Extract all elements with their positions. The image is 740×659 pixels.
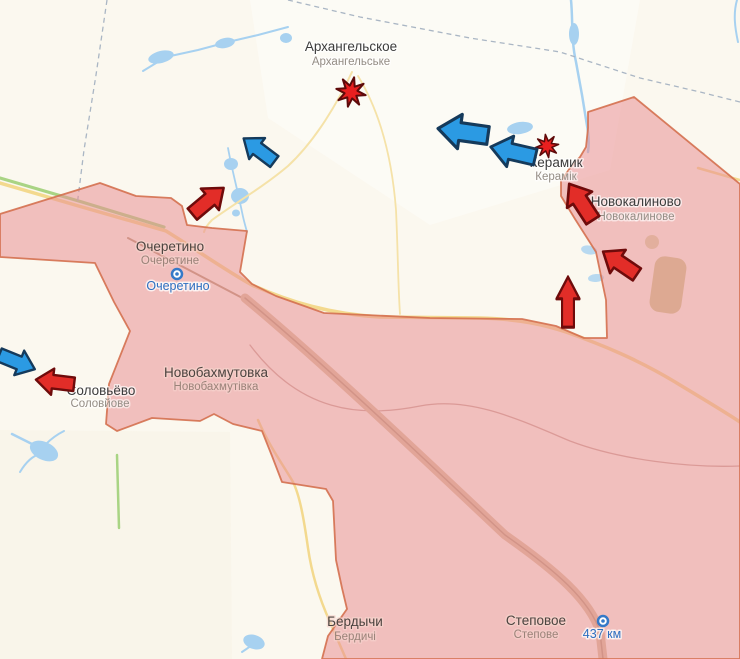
label-novokalynove-uk: Новокалинове: [597, 211, 674, 223]
label-stepove-uk: Степове: [514, 629, 559, 641]
label-station-437km: 437 км: [583, 627, 621, 641]
label-ocheretyne-uk: Очеретине: [141, 255, 199, 267]
label-keramik-uk: Керамік: [535, 171, 577, 183]
field-patch: [0, 430, 232, 659]
label-berdychi-uk: Бердичі: [334, 631, 376, 643]
map-canvas[interactable]: Архангельское Архангельське Керамик Кера…: [0, 0, 740, 659]
railway-station-icon-dot: [601, 619, 605, 623]
label-soloviove-ru: Соловьёво: [67, 383, 136, 398]
frontline-map-svg[interactable]: Архангельское Архангельське Керамик Кера…: [0, 0, 740, 659]
label-arkhanhelske-ru: Архангельское: [305, 39, 397, 54]
label-keramik-ru: Керамик: [529, 155, 582, 170]
label-station-ocheretyne: Очеретино: [146, 279, 209, 293]
label-soloviove-uk: Соловйове: [71, 398, 130, 410]
label-novobakhmutivka-ru: Новобахмутовка: [164, 365, 269, 380]
railway-station-icon-dot: [175, 272, 179, 276]
label-novobakhmutivka-uk: Новобахмутівка: [174, 381, 260, 393]
label-berdychi-ru: Бердычи: [327, 614, 383, 629]
label-ocheretyne-ru: Очеретино: [136, 239, 204, 254]
label-stepove-ru: Степовое: [506, 613, 566, 628]
label-arkhanhelske-uk: Архангельське: [312, 56, 390, 68]
label-novokalynove-ru: Новокалиново: [591, 194, 681, 209]
